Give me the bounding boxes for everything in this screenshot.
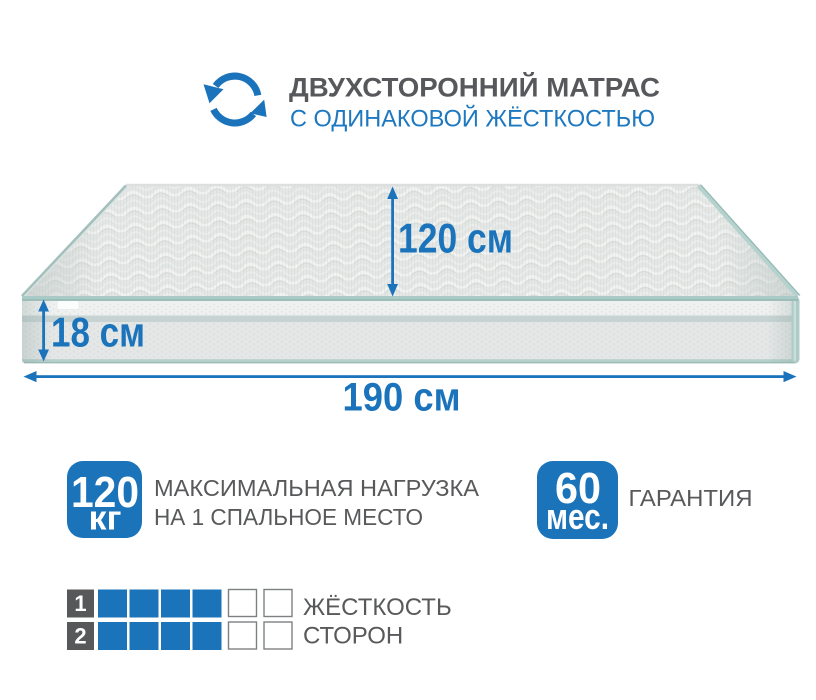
svg-text:1: 1 xyxy=(74,591,86,616)
svg-text:мес.: мес. xyxy=(546,496,609,537)
svg-text:кг: кг xyxy=(89,500,122,538)
svg-text:НА 1 СПАЛЬНОЕ МЕСТО: НА 1 СПАЛЬНОЕ МЕСТО xyxy=(154,504,423,530)
svg-text:ГАРАНТИЯ: ГАРАНТИЯ xyxy=(629,485,753,511)
svg-text:СТОРОН: СТОРОН xyxy=(303,623,403,650)
svg-text:120 см: 120 см xyxy=(398,215,513,262)
svg-text:ЖЁСТКОСТЬ: ЖЁСТКОСТЬ xyxy=(303,594,452,621)
svg-text:С ОДИНАКОВОЙ ЖЁСТКОСТЬЮ: С ОДИНАКОВОЙ ЖЁСТКОСТЬЮ xyxy=(290,105,655,133)
svg-text:ДВУХСТОРОННИЙ МАТРАС: ДВУХСТОРОННИЙ МАТРАС xyxy=(289,72,660,103)
svg-text:2: 2 xyxy=(74,624,86,649)
svg-text:190 см: 190 см xyxy=(343,376,461,420)
svg-text:18 см: 18 см xyxy=(51,309,145,356)
svg-text:МАКСИМАЛЬНАЯ НАГРУЗКА: МАКСИМАЛЬНАЯ НАГРУЗКА xyxy=(154,475,480,501)
